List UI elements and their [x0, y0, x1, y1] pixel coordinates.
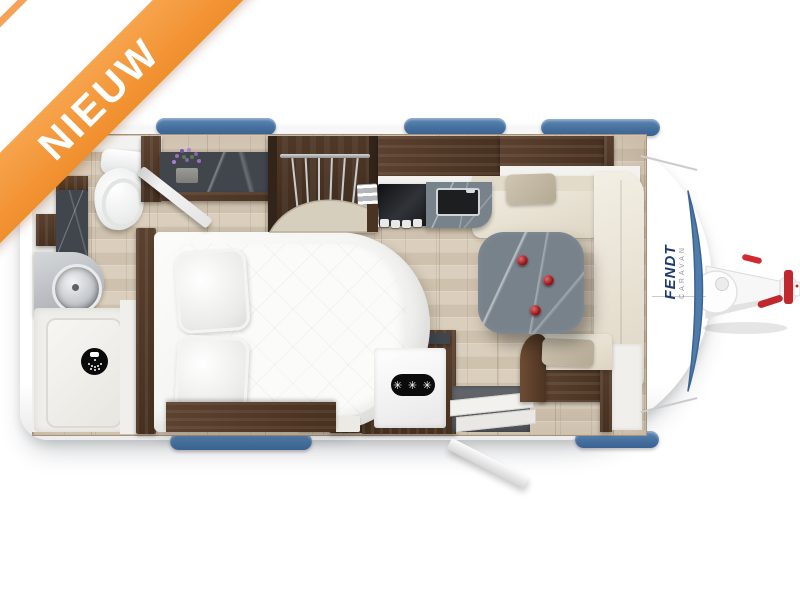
- cup-1: [517, 255, 528, 266]
- freezer-stars-badge: ✳ ✳ ✳: [391, 374, 435, 396]
- stove-knob: [380, 219, 389, 227]
- dinette-cushion-1: [505, 173, 556, 205]
- stove-knob: [413, 219, 422, 227]
- fendt-logo: FENDT CARAVAN: [655, 227, 695, 317]
- shower-icon: [81, 348, 108, 375]
- logo-text: FENDT: [663, 245, 678, 300]
- dinette-cushion-2: [542, 338, 595, 367]
- kitchen-faucet: [466, 189, 475, 193]
- front-wall-seam: [644, 140, 645, 430]
- washroom-shelf: [36, 214, 58, 246]
- window-marker-top-2: [404, 118, 506, 135]
- shower-tray-inner: [46, 318, 122, 428]
- dinette-table: [478, 232, 584, 334]
- bed-foot-bench: [166, 402, 336, 432]
- dinette-overhead-lockers: [500, 136, 606, 168]
- window-marker-top-1: [156, 118, 276, 135]
- dinette-sideboard: [612, 344, 642, 430]
- floorplan-image: ✳ ✳ ✳ FENDT CARAVAN: [0, 0, 800, 600]
- sink-drain: [72, 284, 79, 291]
- cup-3: [530, 305, 541, 316]
- kitchen-overhead-lockers: [378, 136, 502, 178]
- entrance-door-open: [447, 438, 529, 488]
- stove-knob: [402, 220, 411, 228]
- stove-knob: [391, 220, 400, 228]
- logo-subtext: CARAVAN: [678, 245, 688, 299]
- bed-pillow-1: [173, 248, 251, 335]
- bed-headboard-frame: [136, 228, 156, 434]
- flower-pot-icon: [164, 146, 208, 186]
- cup-2: [543, 275, 554, 286]
- wardrobe-front-curve: [268, 186, 378, 236]
